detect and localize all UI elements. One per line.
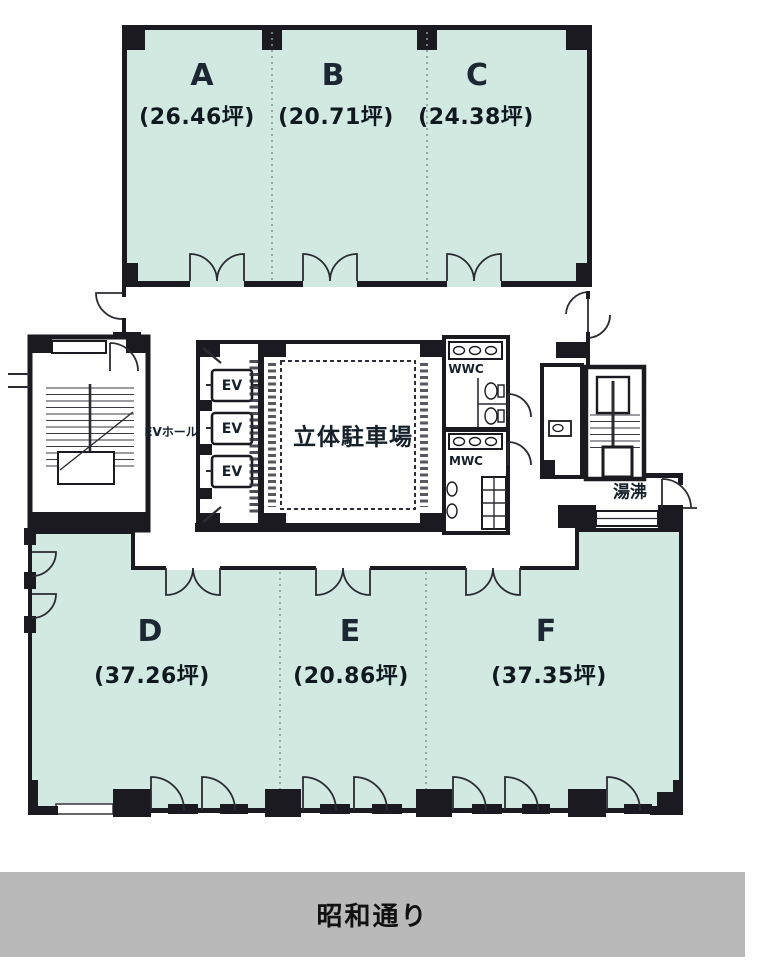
womens-wc-label: WWC — [448, 363, 483, 375]
sink-icon — [486, 438, 497, 446]
elevator-2-label: EV — [222, 422, 242, 436]
right-core — [540, 365, 697, 528]
left-stairwell — [8, 337, 148, 530]
unit-e-label: E — [340, 617, 361, 647]
urinal-icon — [447, 504, 457, 518]
unit-a-area: (26.46坪) — [139, 107, 255, 129]
street-label: 昭和通り — [316, 896, 428, 933]
column-block — [113, 789, 151, 817]
unit-e-area: (20.86坪) — [293, 666, 409, 688]
elevator-1-label: EV — [222, 379, 242, 393]
column-block — [125, 30, 145, 50]
column-block — [265, 789, 301, 817]
unit-c-area: (24.38坪) — [418, 107, 534, 129]
toilet-icon — [485, 408, 497, 424]
unit-f-label: F — [536, 617, 557, 647]
column-block — [568, 789, 606, 817]
column-block — [24, 572, 36, 589]
column-block — [566, 30, 587, 50]
street-band: 昭和通り — [0, 872, 745, 957]
unit-f-area: (37.35坪) — [491, 666, 607, 688]
column-block — [24, 528, 36, 545]
column-block — [416, 789, 452, 817]
urinal-icon — [447, 482, 457, 496]
unit-d-area: (37.26坪) — [94, 666, 210, 688]
elevator-3-label: EV — [222, 465, 242, 479]
floor-plan: A (26.46坪) B (20.71坪) C (24.38坪) D (37.2… — [0, 0, 759, 980]
unit-a-label: A — [190, 61, 213, 91]
door-swing-icon — [508, 442, 531, 465]
unit-d-label: D — [138, 617, 163, 647]
door-swing-icon — [96, 293, 122, 319]
door-swing-icon — [508, 394, 531, 417]
parking-label: 立体駐車場 — [293, 427, 413, 450]
sink-icon — [454, 438, 465, 446]
sink-icon — [486, 347, 497, 355]
hot-water-label: 湯沸 — [613, 485, 647, 502]
unit-b-area: (20.71坪) — [278, 107, 394, 129]
toilet-icon — [485, 383, 497, 399]
sink-icon — [470, 347, 481, 355]
ev-hall-label: EVホール — [144, 426, 198, 438]
sink-icon — [454, 347, 465, 355]
mens-wc-label: MWC — [449, 455, 483, 467]
sink-icon — [470, 438, 481, 446]
unit-c-label: C — [466, 61, 488, 91]
unit-b-label: B — [322, 61, 345, 91]
